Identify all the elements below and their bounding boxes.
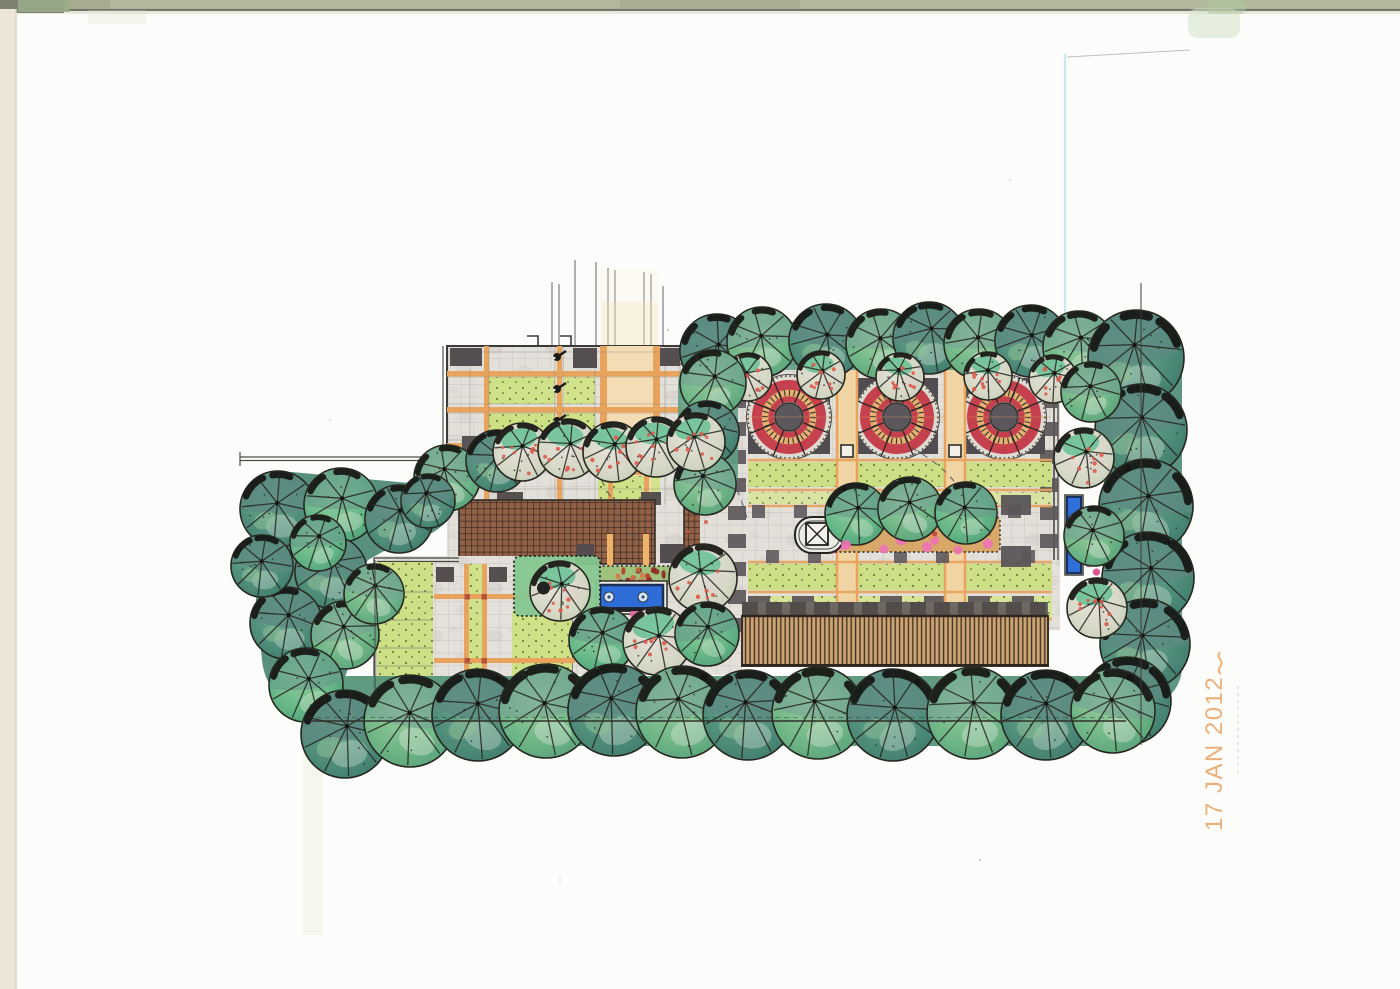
- svg-text:17 JAN 2012: 17 JAN 2012: [1201, 676, 1228, 831]
